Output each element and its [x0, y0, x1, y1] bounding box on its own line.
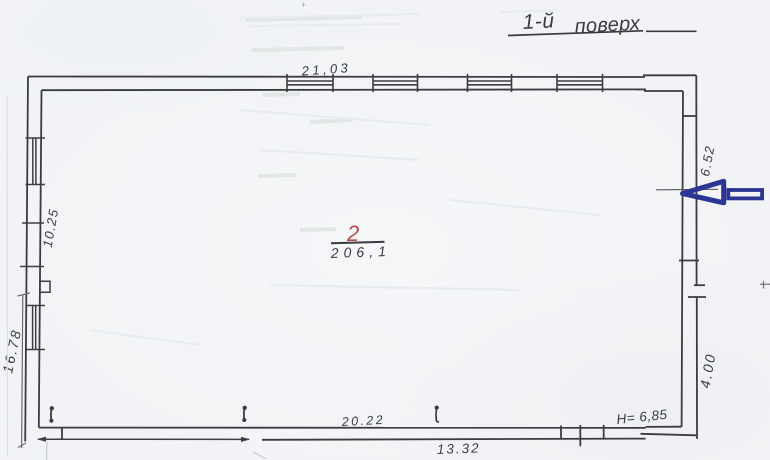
svg-text:10.25: 10.25	[40, 207, 62, 249]
svg-text:20.22: 20.22	[340, 413, 385, 429]
svg-text:H= 6,85: H= 6,85	[616, 407, 668, 427]
svg-text:+: +	[301, 0, 306, 10]
svg-text:1-й: 1-й	[522, 9, 555, 34]
svg-text:6.52: 6.52	[697, 144, 717, 178]
svg-text:206,1: 206,1	[330, 243, 392, 261]
svg-text:4.00: 4.00	[697, 351, 719, 389]
svg-text:13.32: 13.32	[437, 440, 481, 457]
svg-text:16.78: 16.78	[0, 327, 24, 374]
svg-text:поверх: поверх	[574, 13, 641, 38]
svg-text:21,03: 21,03	[300, 60, 351, 78]
